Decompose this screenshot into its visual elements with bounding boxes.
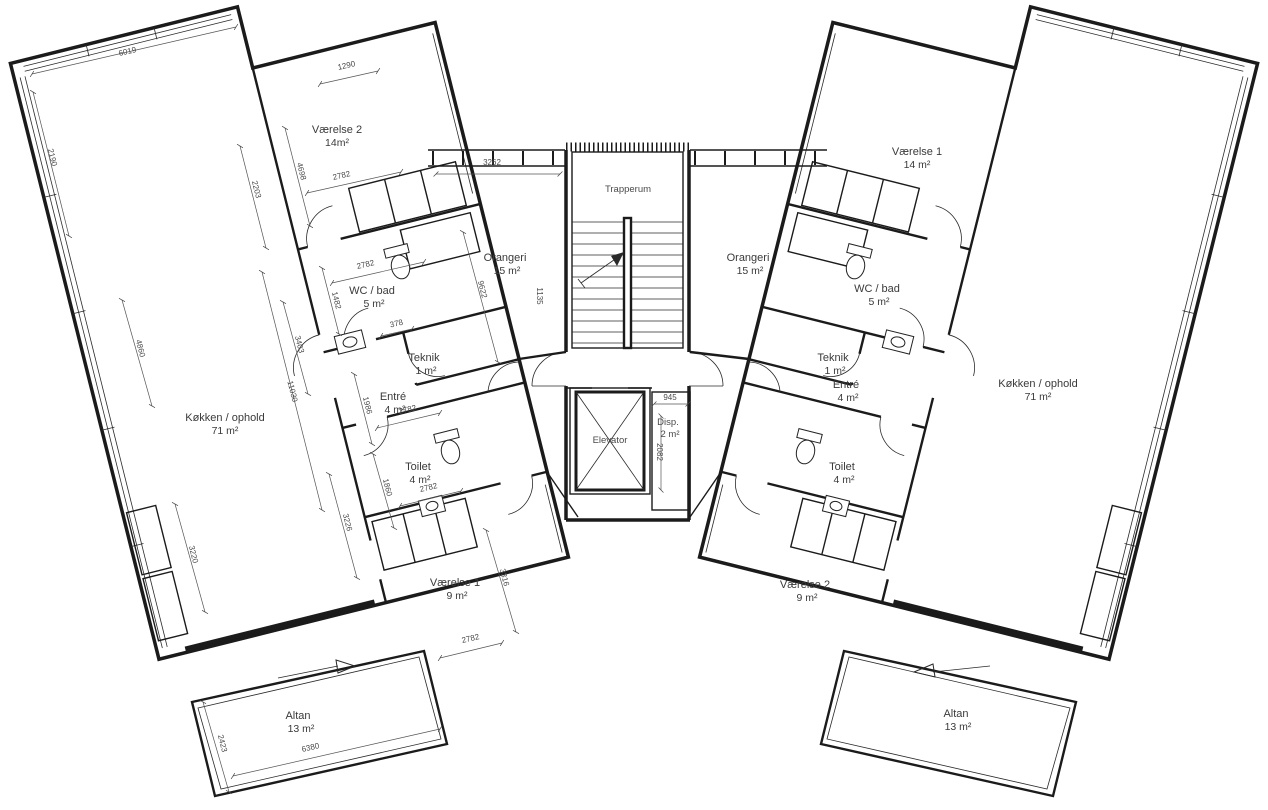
room-area-right-teknik: 1 m² (825, 365, 847, 377)
room-label-left-kokken: Køkken / ophold (185, 412, 265, 424)
room-label-left-vaerelse1: Værelse 1 (430, 577, 480, 589)
dim-label: 945 (663, 393, 677, 402)
dim-label: 3262 (483, 158, 501, 167)
room-area-right-altan: 13 m² (945, 721, 972, 733)
room-area-disp: 2 m² (661, 429, 680, 440)
paper-background (0, 0, 1268, 810)
room-label-right-kokken: Køkken / ophold (998, 378, 1078, 390)
room-label-left-altan: Altan (285, 710, 310, 722)
room-label-right-altan: Altan (943, 708, 968, 720)
room-label-elevator: Elevator (593, 435, 628, 446)
dim-label: 1135 (535, 287, 544, 305)
room-area-left-orangeri: 15 m² (494, 265, 521, 277)
room-label-trapperum: Trapperum (605, 184, 651, 195)
room-label-disp: Disp. (657, 417, 679, 428)
room-area-right-toilet: 4 m² (834, 474, 856, 486)
room-area-left-vaerelse1: 9 m² (447, 590, 469, 602)
room-label-right-entre: Entré (833, 379, 859, 391)
room-label-left-teknik: Teknik (408, 352, 440, 364)
room-area-right-vaerelse1: 14 m² (904, 159, 931, 171)
room-area-right-kokken: 71 m² (1025, 391, 1052, 403)
room-label-right-vaerelse1: Værelse 1 (892, 146, 942, 158)
room-label-right-teknik: Teknik (817, 352, 849, 364)
room-label-right-toilet: Toilet (829, 461, 855, 473)
dim-label: 2082 (655, 443, 664, 461)
room-area-left-teknik: 1 m² (416, 365, 438, 377)
room-area-right-entre: 4 m² (838, 392, 860, 404)
room-area-right-wcbad: 5 m² (869, 296, 891, 308)
room-area-left-wcbad: 5 m² (364, 298, 386, 310)
room-label-left-entre: Entré (380, 391, 406, 403)
room-label-left-orangeri: Orangeri (484, 252, 527, 264)
room-label-left-wcbad: WC / bad (349, 285, 395, 297)
floor-plan-canvas: Værelse 2 14m² WC / bad 5 m² Teknik 1 m²… (0, 0, 1268, 810)
floor-plan-page: Værelse 2 14m² WC / bad 5 m² Teknik 1 m²… (0, 0, 1268, 810)
room-area-left-altan: 13 m² (288, 723, 315, 735)
room-label-left-toilet: Toilet (405, 461, 431, 473)
room-area-right-orangeri: 15 m² (737, 265, 764, 277)
room-label-right-wcbad: WC / bad (854, 283, 900, 295)
room-area-left-vaerelse2: 14m² (325, 137, 349, 149)
room-area-right-vaerelse2: 9 m² (797, 592, 819, 604)
room-label-left-vaerelse2: Værelse 2 (312, 124, 362, 136)
room-area-left-kokken: 71 m² (212, 425, 239, 437)
room-label-right-vaerelse2: Værelse 2 (780, 579, 830, 591)
room-label-right-orangeri: Orangeri (727, 252, 770, 264)
